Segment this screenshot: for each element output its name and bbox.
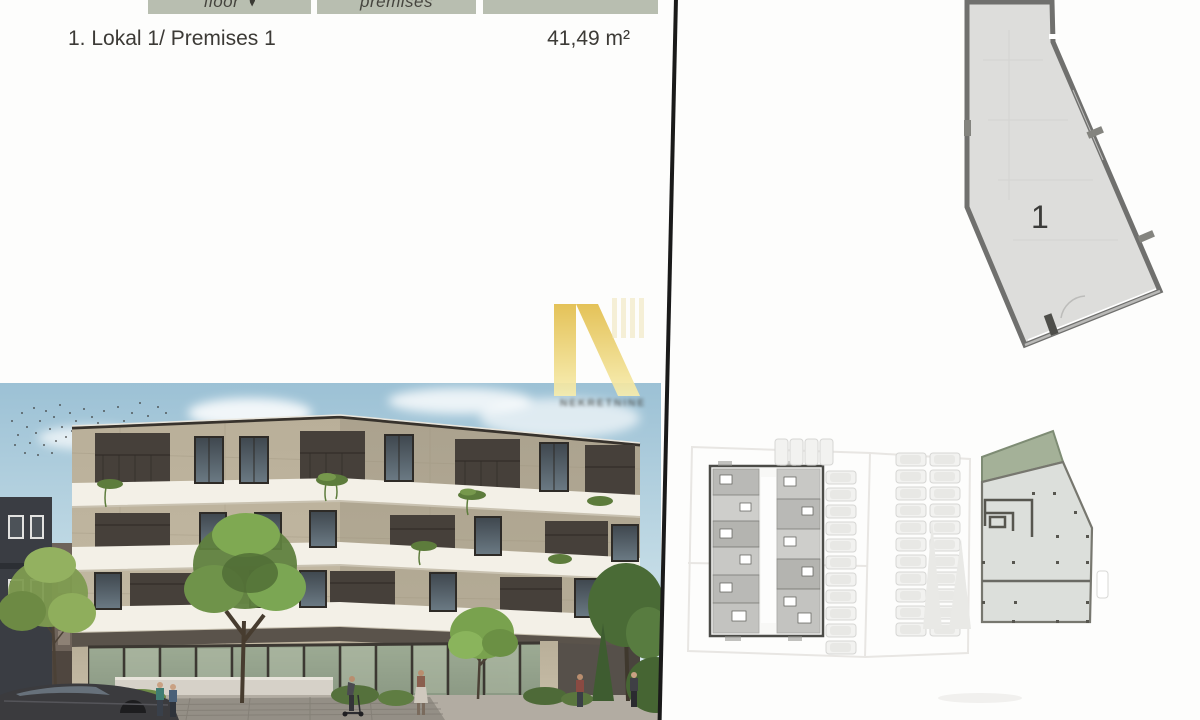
sort-arrow-icon (248, 0, 255, 7)
table-header-cell-floor: floor (148, 0, 311, 14)
n-logo-icon (542, 294, 664, 399)
premises-outline (982, 431, 1108, 623)
apartment-building-plan (710, 461, 823, 641)
table-header-cell-premises: premises (317, 0, 476, 14)
premises-listing-row: 1. Lokal 1/ Premises 1 41,49 m² (68, 27, 630, 51)
site-plan (680, 425, 1200, 717)
main-building (72, 415, 640, 703)
low-wall-cap (115, 677, 333, 680)
table-header-cell-empty (483, 0, 658, 14)
unit-outline (967, 2, 1160, 345)
scan-smudge (938, 693, 1022, 703)
premises-area: 41,49 m² (547, 27, 630, 51)
building-rendering-image (0, 383, 661, 720)
unit-number-label: 1 (1031, 199, 1049, 235)
premises-name: 1. Lokal 1/ Premises 1 (68, 27, 276, 51)
side-stall (1097, 571, 1108, 598)
watermark-logo: NEKRETNINE (542, 294, 664, 426)
unit-floor-plan: 1 (943, 0, 1175, 352)
brochure-page: floor premises 1. Lokal 1/ Premises 1 41… (0, 0, 1200, 720)
premises-column-label: premises (360, 0, 433, 12)
floor-column-label: floor (204, 0, 240, 12)
watermark-text: NEKRETNINE (542, 397, 664, 409)
